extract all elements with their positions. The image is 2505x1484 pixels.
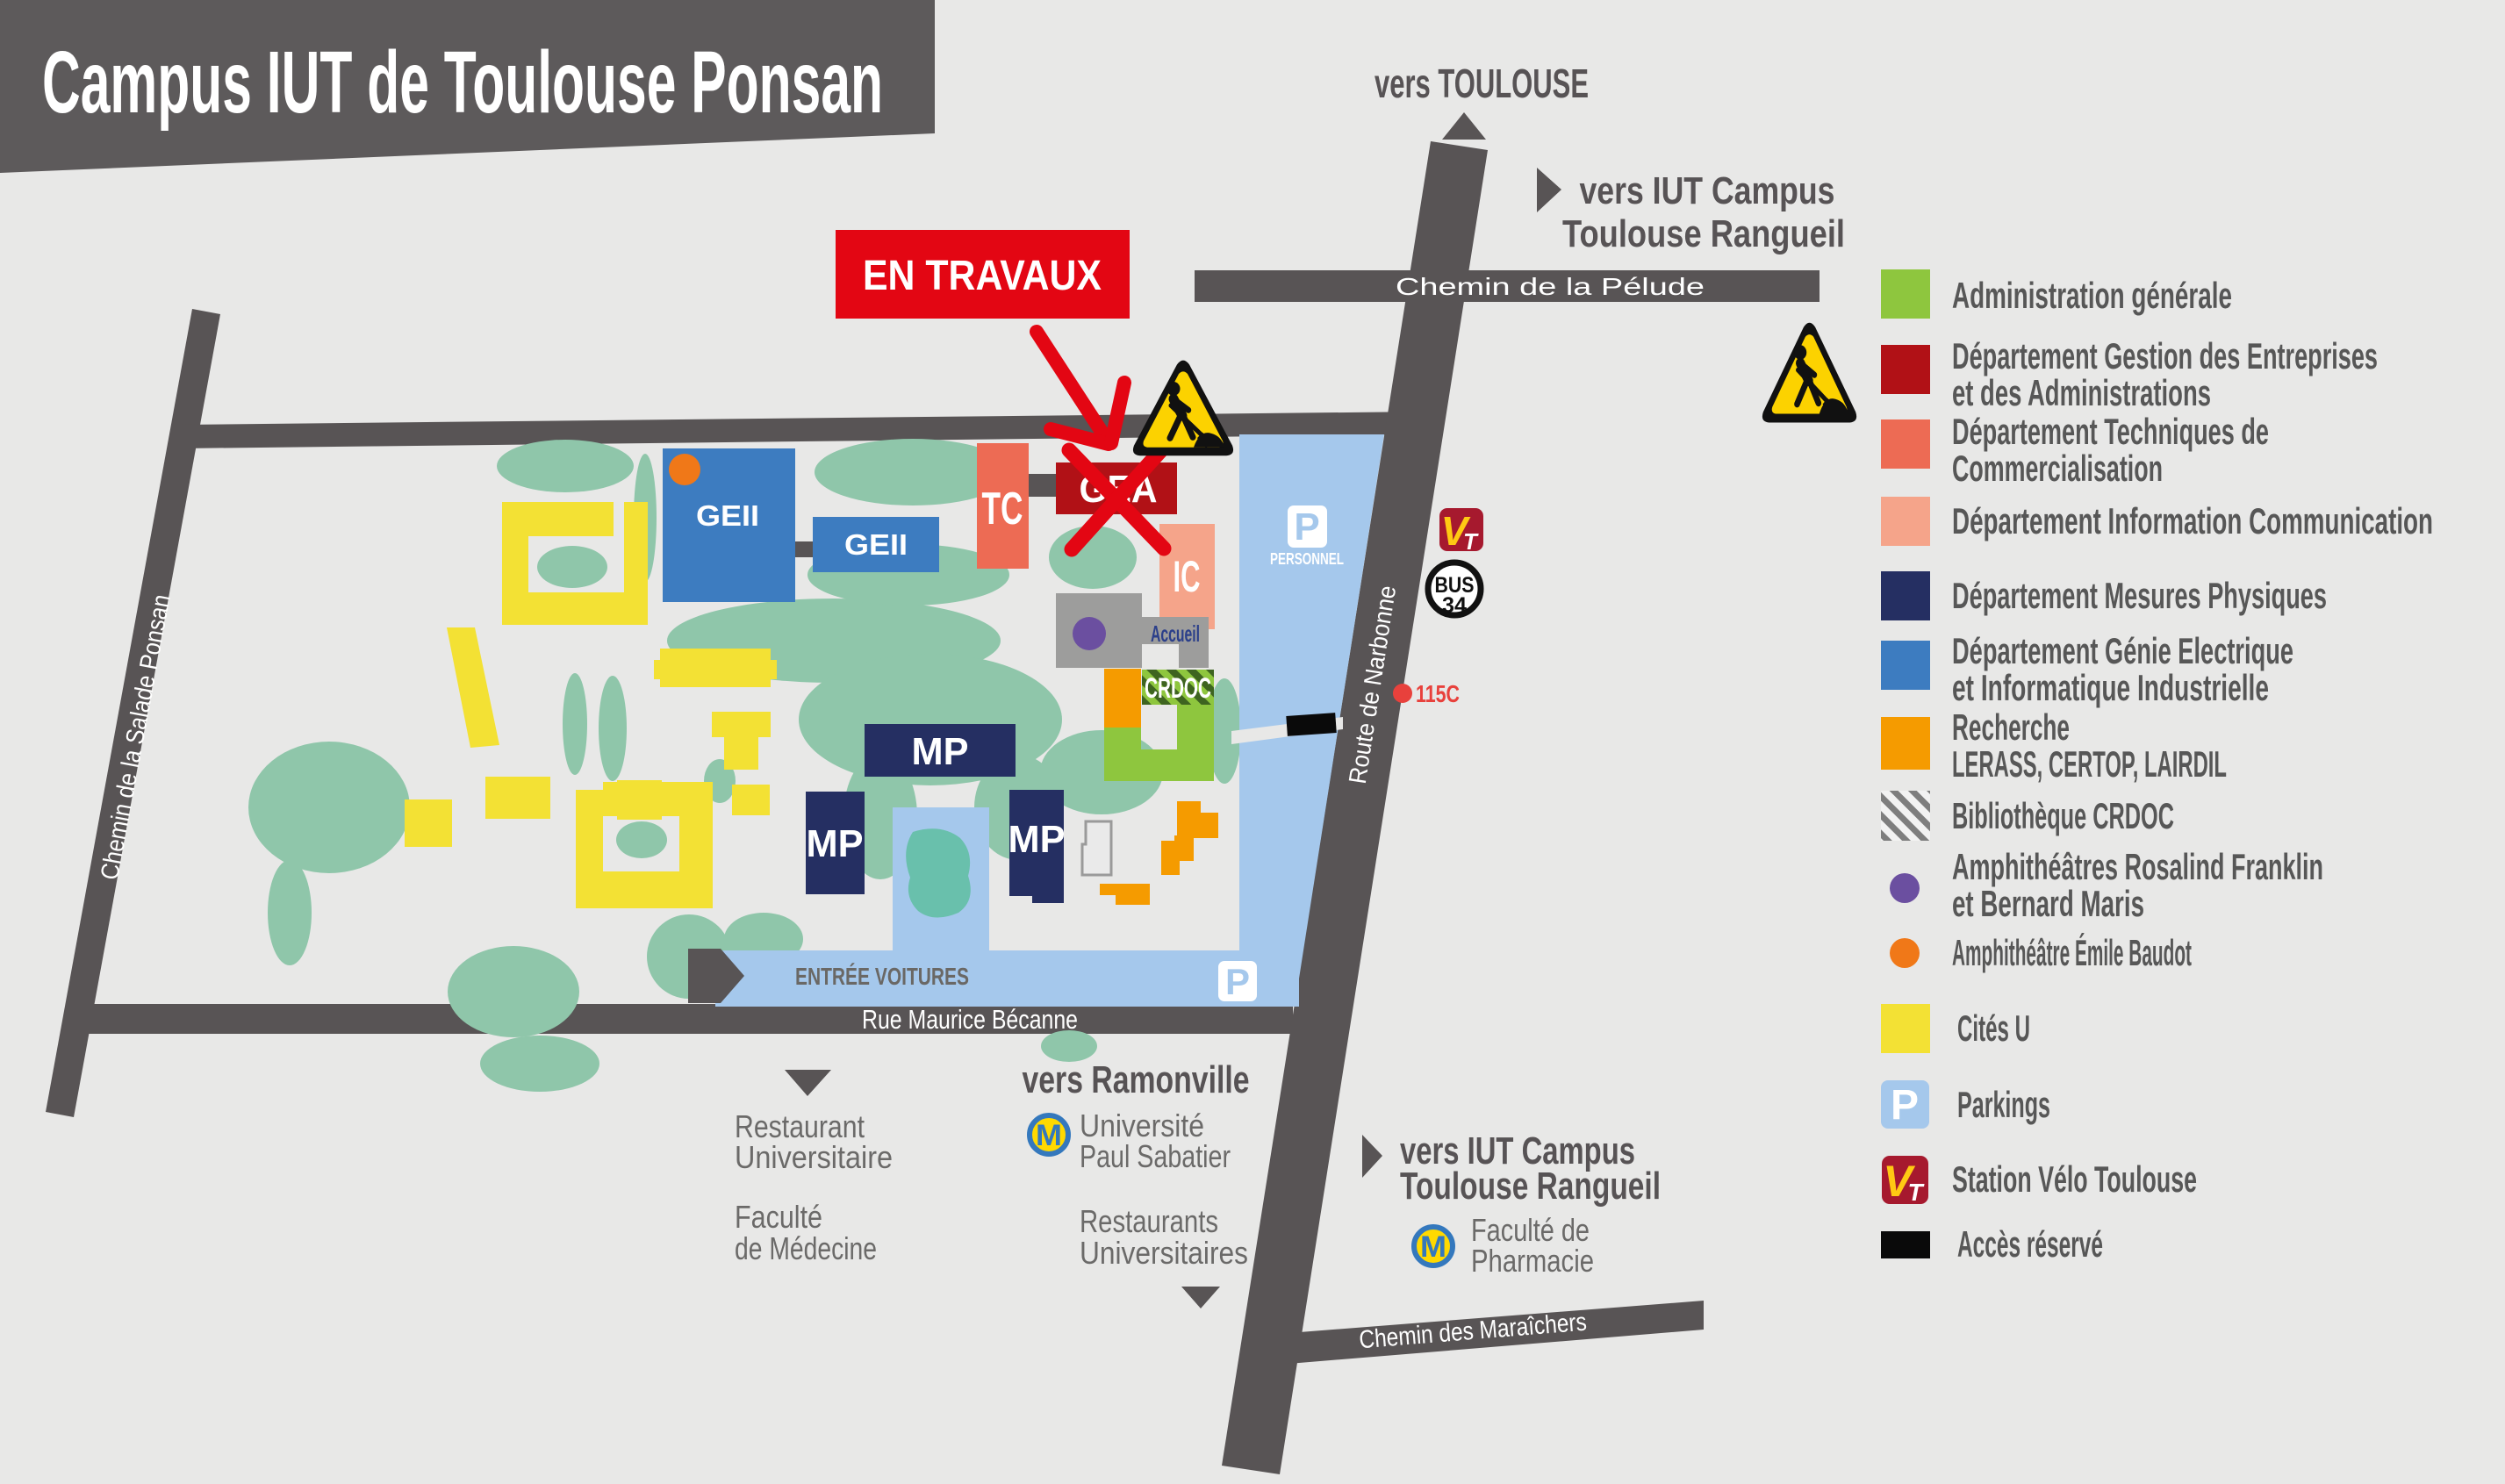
svg-text:T: T (1463, 528, 1479, 555)
svg-text:Département Gestion des Entrep: Département Gestion des Entreprises (1952, 335, 2378, 376)
svg-text:Accueil: Accueil (1151, 620, 1200, 647)
svg-text:CRDOC: CRDOC (1145, 672, 1211, 704)
svg-text:Département Techniques de: Département Techniques de (1952, 411, 2269, 452)
svg-text:et Informatique Industrielle: et Informatique Industrielle (1952, 667, 2269, 708)
svg-text:Département Mesures Physiques: Département Mesures Physiques (1952, 575, 2327, 616)
svg-text:Commercialisation: Commercialisation (1952, 448, 2163, 489)
svg-text:Faculté: Faculté (735, 1199, 822, 1235)
svg-text:Paul Sabatier: Paul Sabatier (1080, 1138, 1231, 1174)
svg-text:Recherche: Recherche (1952, 706, 2070, 748)
svg-text:IC: IC (1174, 552, 1201, 601)
svg-text:Amphithéâtre Émile Baudot: Amphithéâtre Émile Baudot (1952, 932, 2192, 973)
svg-text:de Médecine: de Médecine (735, 1230, 877, 1266)
svg-text:T: T (1907, 1179, 1925, 1206)
svg-text:ENTRÉE VOITURES: ENTRÉE VOITURES (795, 963, 969, 990)
svg-text:vers Ramonville: vers Ramonville (1023, 1058, 1250, 1101)
svg-text:MP: MP (912, 730, 969, 773)
svg-text:GEII: GEII (696, 499, 759, 532)
svg-text:TC: TC (982, 484, 1023, 534)
svg-text:Toulouse Rangueil: Toulouse Rangueil (1400, 1165, 1661, 1208)
svg-text:MP: MP (807, 822, 864, 865)
svg-text:Chemin de la Pélude: Chemin de la Pélude (1396, 273, 1705, 300)
svg-text:LERASS, CERTOP, LAIRDIL: LERASS, CERTOP, LAIRDIL (1952, 743, 2227, 785)
svg-text:Universitaires: Universitaires (1080, 1235, 1248, 1271)
svg-text:Administration générale: Administration générale (1952, 275, 2232, 316)
svg-text:P: P (1294, 505, 1319, 548)
svg-text:Parkings: Parkings (1957, 1084, 2050, 1125)
svg-text:Département Génie Electrique: Département Génie Electrique (1952, 630, 2293, 671)
svg-text:P: P (1891, 1082, 1919, 1129)
svg-text:et des Administrations: et des Administrations (1952, 372, 2211, 413)
svg-text:115C: 115C (1416, 680, 1460, 707)
svg-text:et Bernard Maris: et Bernard Maris (1952, 883, 2144, 924)
svg-text:Bibliothèque CRDOC: Bibliothèque CRDOC (1952, 795, 2174, 836)
svg-text:Restaurants: Restaurants (1080, 1203, 1218, 1239)
svg-text:Rue Maurice Bécanne: Rue Maurice Bécanne (862, 1004, 1078, 1035)
svg-text:Département Information Commun: Département Information Communication (1952, 500, 2433, 541)
svg-text:EN TRAVAUX: EN TRAVAUX (863, 253, 1102, 299)
svg-text:P: P (1225, 961, 1250, 1002)
svg-text:vers TOULOUSE: vers TOULOUSE (1375, 61, 1589, 106)
svg-text:Accès réservé: Accès réservé (1957, 1223, 2103, 1265)
svg-text:Pharmacie: Pharmacie (1471, 1243, 1594, 1279)
svg-text:MP: MP (1008, 818, 1066, 861)
svg-text:34: 34 (1442, 593, 1467, 618)
svg-text:Amphithéâtres Rosalind Frankli: Amphithéâtres Rosalind Franklin (1952, 846, 2323, 887)
svg-text:Universitaire: Universitaire (735, 1139, 893, 1175)
svg-text:vers IUT Campus: vers IUT Campus (1580, 169, 1835, 212)
svg-text:Campus IUT de Toulouse Ponsan: Campus IUT de Toulouse Ponsan (42, 33, 883, 132)
svg-text:Toulouse Rangueil: Toulouse Rangueil (1562, 212, 1845, 255)
svg-text:GEII: GEII (844, 528, 908, 561)
svg-text:Station Vélo Toulouse: Station Vélo Toulouse (1952, 1158, 2197, 1200)
svg-text:Cités U: Cités U (1957, 1007, 2030, 1049)
svg-text:PERSONNEL: PERSONNEL (1270, 550, 1344, 568)
